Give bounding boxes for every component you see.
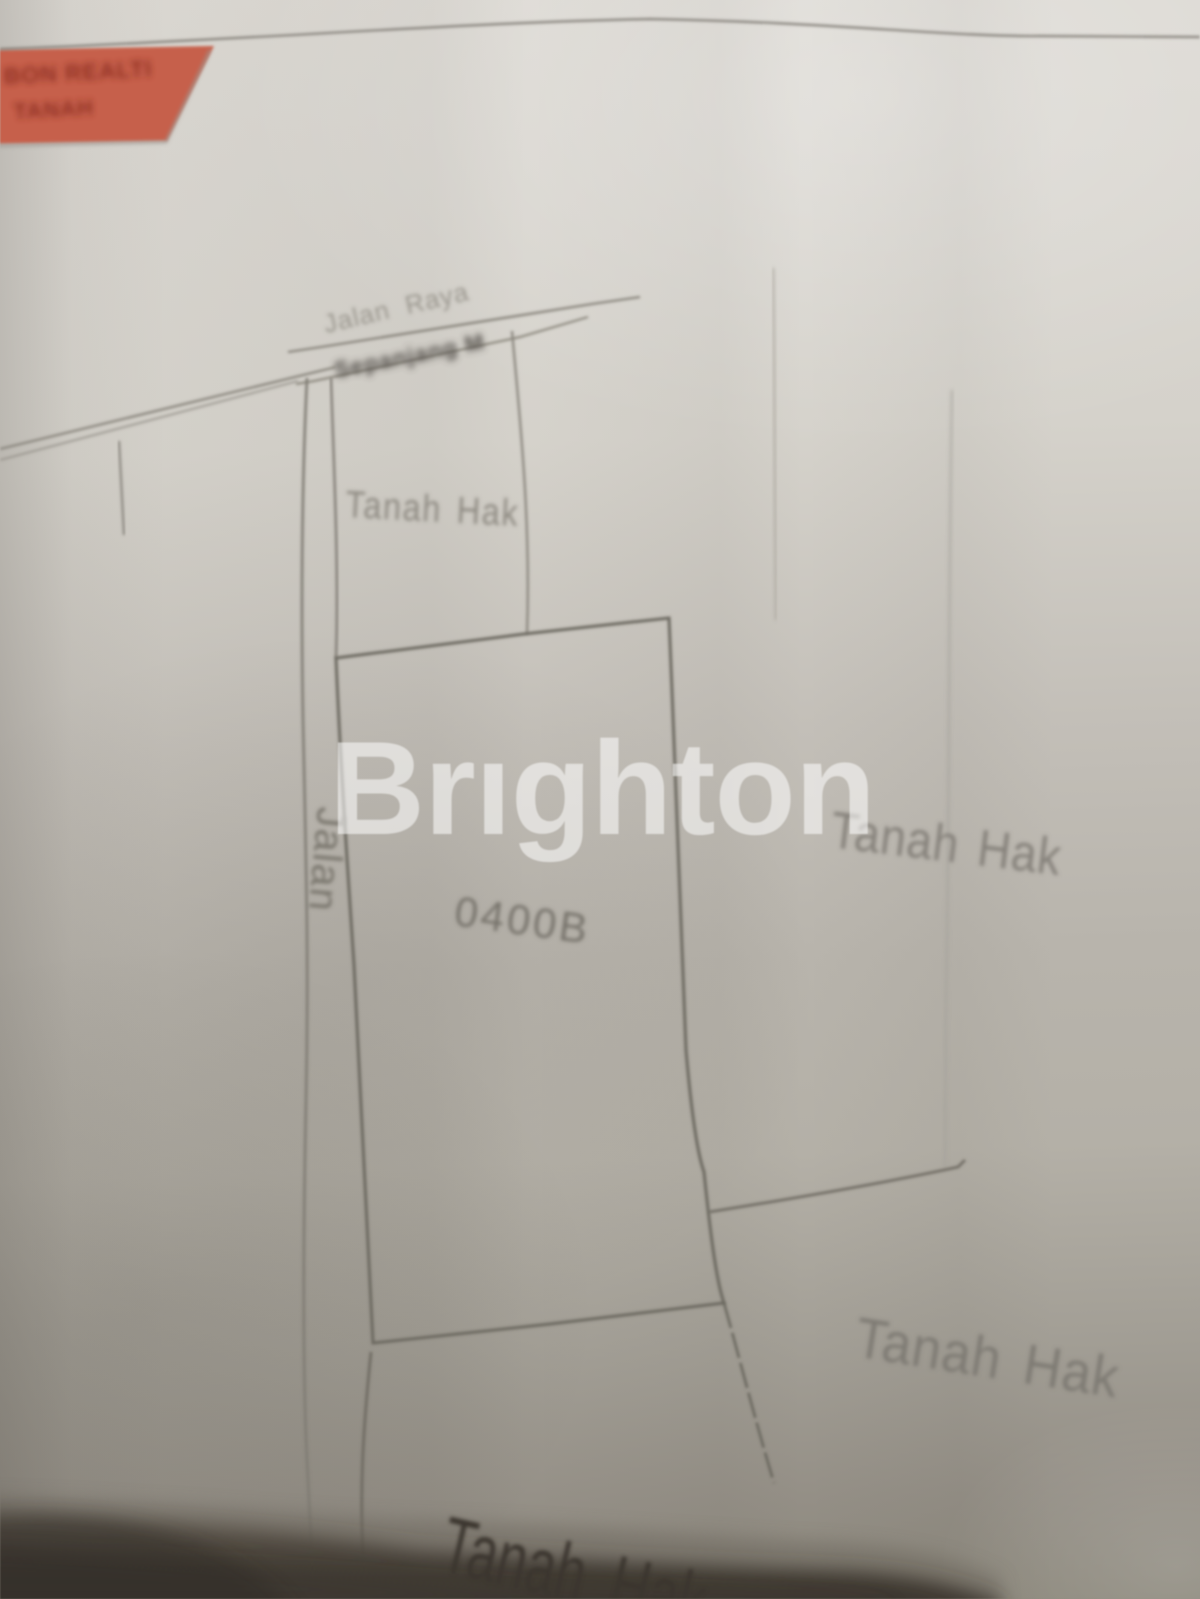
svg-text:Tanah Hak: Tanah Hak xyxy=(433,1500,715,1599)
svg-text:0400B: 0400B xyxy=(452,887,594,953)
svg-text:Jalan Raya: Jalan Raya xyxy=(321,276,472,339)
svg-text:Jalan: Jalan xyxy=(300,805,355,914)
svg-text:Tanah Hak: Tanah Hak xyxy=(828,802,1065,887)
svg-text:Sepanjang M: Sepanjang M xyxy=(332,328,487,383)
svg-text:BON REALTI: BON REALTI xyxy=(3,55,153,89)
svg-text:Tanah Hak: Tanah Hak xyxy=(851,1305,1124,1410)
svg-text:TANAH: TANAH xyxy=(13,95,95,124)
svg-text:Brıghton: Brıghton xyxy=(329,715,875,863)
svg-text:Tanah Hak: Tanah Hak xyxy=(345,484,521,535)
